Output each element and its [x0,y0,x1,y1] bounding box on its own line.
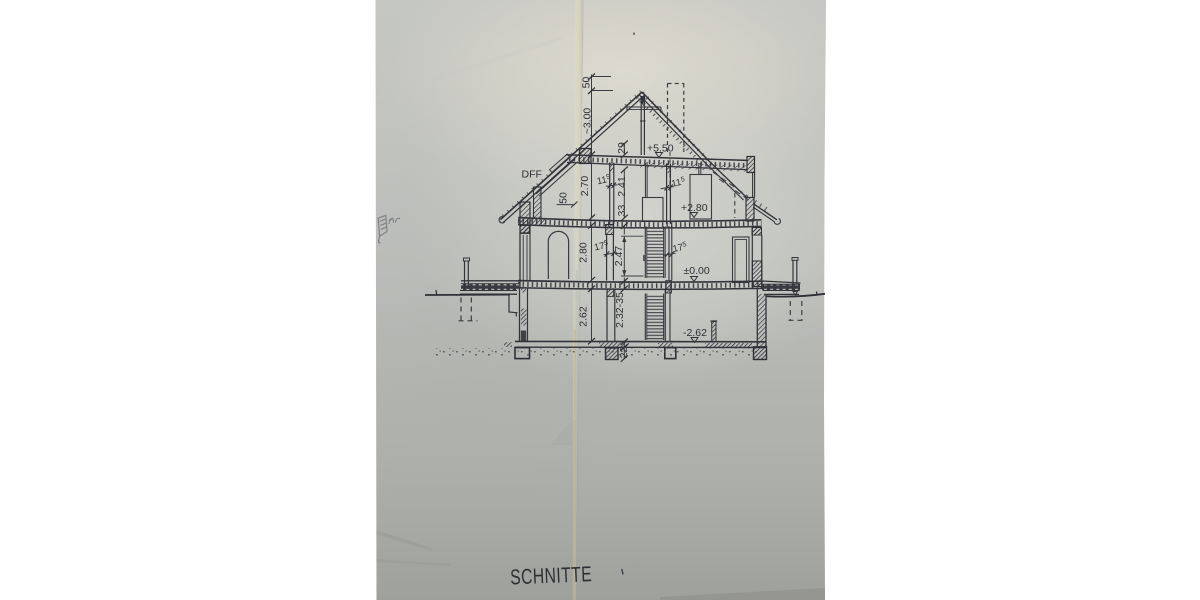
svg-text:2.80: 2.80 [578,242,590,263]
svg-text:50: 50 [558,192,570,204]
svg-text:29: 29 [616,142,628,154]
svg-text:2.47: 2.47 [613,246,625,267]
svg-text:33: 33 [616,205,628,217]
svg-text:±0.00: ±0.00 [684,265,710,277]
svg-text:~3.00: ~3.00 [582,108,594,135]
svg-text:SCHNITTE: SCHNITTE [510,562,593,589]
svg-text:DFF: DFF [522,169,542,181]
svg-text:2.62: 2.62 [578,306,590,327]
svg-text:2.70: 2.70 [579,176,591,197]
svg-text:2.32-35: 2.32-35 [614,292,626,328]
svg-text:50: 50 [581,77,593,89]
svg-text:2.41: 2.41 [616,176,628,197]
